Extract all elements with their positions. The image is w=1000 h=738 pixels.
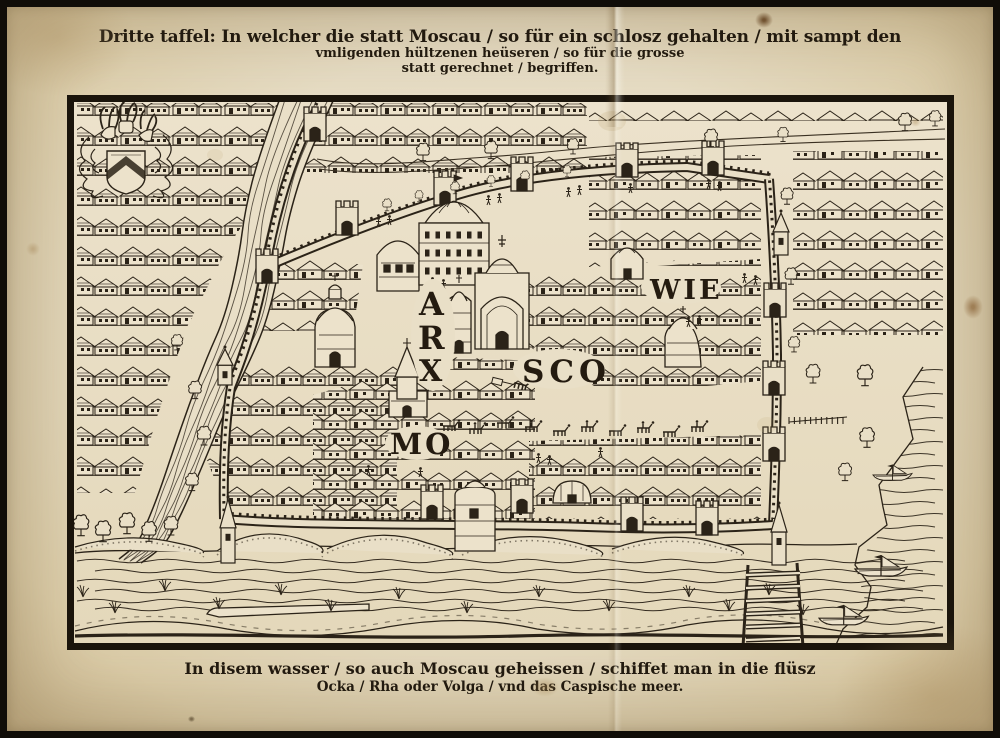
title-line-2: vmligenden hültzenen heüseren / so für d… xyxy=(7,47,993,62)
square-tower xyxy=(256,249,278,283)
label-arx-a: A xyxy=(418,285,445,323)
foxing-spot xyxy=(963,295,983,319)
square-tower xyxy=(764,283,786,317)
title-line-3: statt gerechnet / begriffen. xyxy=(7,62,993,77)
label-wie: WIE xyxy=(649,275,723,306)
caption-line-1: In disem wasser / so auch Moscau geheiss… xyxy=(7,659,993,679)
label-mo: MO xyxy=(390,427,453,461)
square-tower xyxy=(511,479,533,513)
caption-line-2: Ocka / Rha oder Volga / vnd das Caspisch… xyxy=(7,679,993,696)
engraving-page: Dritte taffel: In welcher die statt Mosc… xyxy=(0,0,1000,738)
label-arx-r: R xyxy=(418,319,445,357)
map-title-block: Dritte taffel: In welcher die statt Mosc… xyxy=(7,28,993,76)
map-frame: A R X SCO WIE MO xyxy=(67,95,954,650)
dome-chapel-north xyxy=(611,248,643,279)
square-tower xyxy=(336,201,358,235)
label-sco: SCO xyxy=(522,354,611,390)
river-tower xyxy=(455,481,495,551)
title-line-1: Dritte taffel: In welcher die statt Mosc… xyxy=(7,28,993,47)
square-tower xyxy=(304,107,326,141)
foxing-spot xyxy=(188,716,195,722)
square-tower xyxy=(696,501,718,535)
foxing-spot xyxy=(26,242,40,256)
square-tower xyxy=(421,485,443,519)
kremlin-bastion xyxy=(377,241,419,291)
square-tower xyxy=(621,497,643,531)
foxing-spot xyxy=(755,12,773,28)
square-tower xyxy=(616,143,638,177)
label-arx-x: X xyxy=(419,354,443,389)
square-tower xyxy=(702,141,724,175)
moscow-map-engraving: A R X SCO WIE MO xyxy=(67,95,954,650)
square-tower xyxy=(763,361,785,395)
map-caption-block: In disem wasser / so auch Moscau geheiss… xyxy=(7,659,993,696)
